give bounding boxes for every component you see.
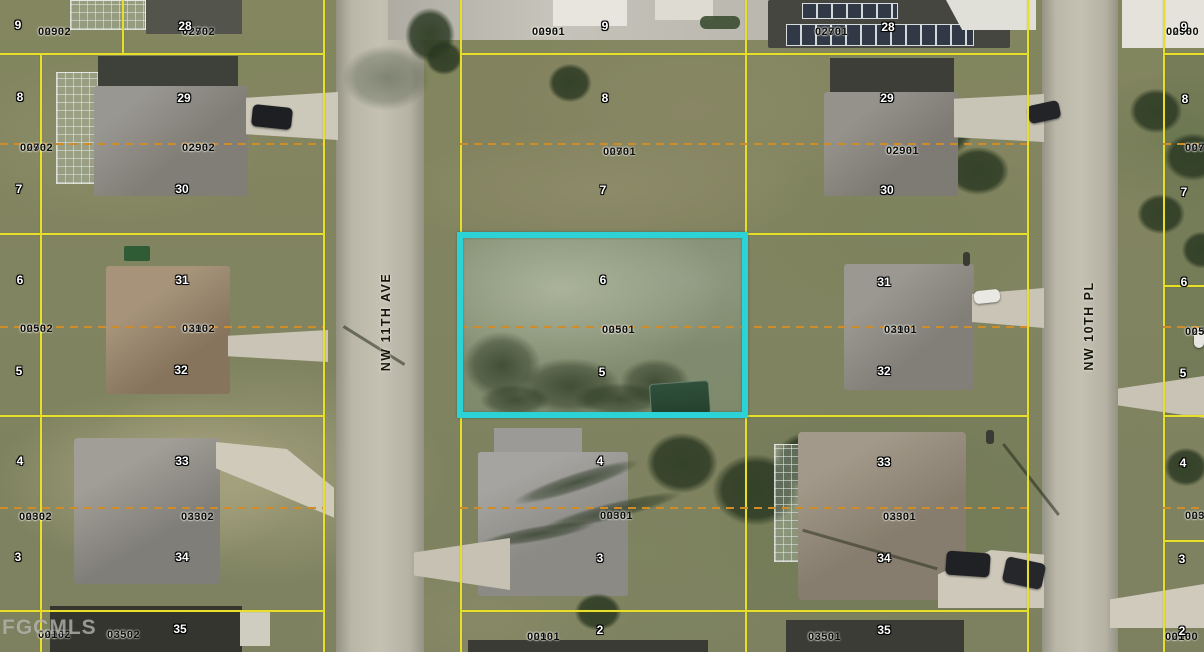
lot-split-line xyxy=(1163,326,1204,328)
street-label-nw-11th-ave: NW 11TH AVE xyxy=(379,273,393,371)
pool-screen-enclosure xyxy=(70,0,146,30)
dumpster xyxy=(124,246,150,261)
lot-split-line xyxy=(460,143,1027,145)
parcel-line xyxy=(1163,285,1204,287)
parcel-line xyxy=(1163,53,1204,55)
house-roof xyxy=(468,640,708,652)
parcel-line xyxy=(0,415,323,417)
vehicle xyxy=(945,550,991,577)
pedestrian xyxy=(986,430,994,444)
parcel-line xyxy=(1027,0,1029,652)
parcel-line xyxy=(460,53,1027,55)
parcel-line xyxy=(460,610,1027,612)
house-roof xyxy=(106,266,230,394)
tree-shadow xyxy=(330,36,442,120)
house-roof xyxy=(786,620,964,652)
palm-tree xyxy=(568,588,628,636)
solar-panel-array xyxy=(802,3,898,19)
parcel-line xyxy=(0,233,323,235)
vehicle xyxy=(973,289,1000,305)
lot-split-line xyxy=(0,507,323,509)
lot-split-line xyxy=(1163,507,1204,509)
lot-split-line xyxy=(0,143,323,145)
mls-watermark: FGCMLS xyxy=(2,616,97,640)
parcel-line xyxy=(1163,540,1204,542)
parcel-line xyxy=(0,610,323,612)
lot-split-line xyxy=(0,326,323,328)
highlighted-parcel-outline xyxy=(457,232,748,418)
road-nw-10th-pl xyxy=(1042,0,1118,652)
pedestrian xyxy=(963,252,970,266)
parcel-line xyxy=(323,0,325,652)
lot-split-line xyxy=(460,507,1027,509)
tree-canopy xyxy=(542,58,598,108)
vehicle xyxy=(251,104,293,130)
house-roof xyxy=(98,56,238,90)
vehicle xyxy=(1194,328,1204,348)
street-label-nw-10th-pl: NW 10TH PL xyxy=(1082,281,1096,370)
hedge xyxy=(700,16,740,29)
house-roof-white-section xyxy=(553,0,627,26)
house-roof xyxy=(146,0,242,34)
parcel-line xyxy=(1163,415,1204,417)
concrete-pad xyxy=(240,612,270,646)
parcel-line xyxy=(122,0,124,53)
house-roof xyxy=(830,58,954,94)
solar-panel-array xyxy=(786,24,974,46)
lot-split-line xyxy=(1163,143,1204,145)
parcel-line xyxy=(0,53,323,55)
house-roof xyxy=(74,438,220,584)
house-roof xyxy=(94,86,248,196)
aerial-parcel-map: 0293200900293202700293100900293102700293… xyxy=(0,0,1204,652)
